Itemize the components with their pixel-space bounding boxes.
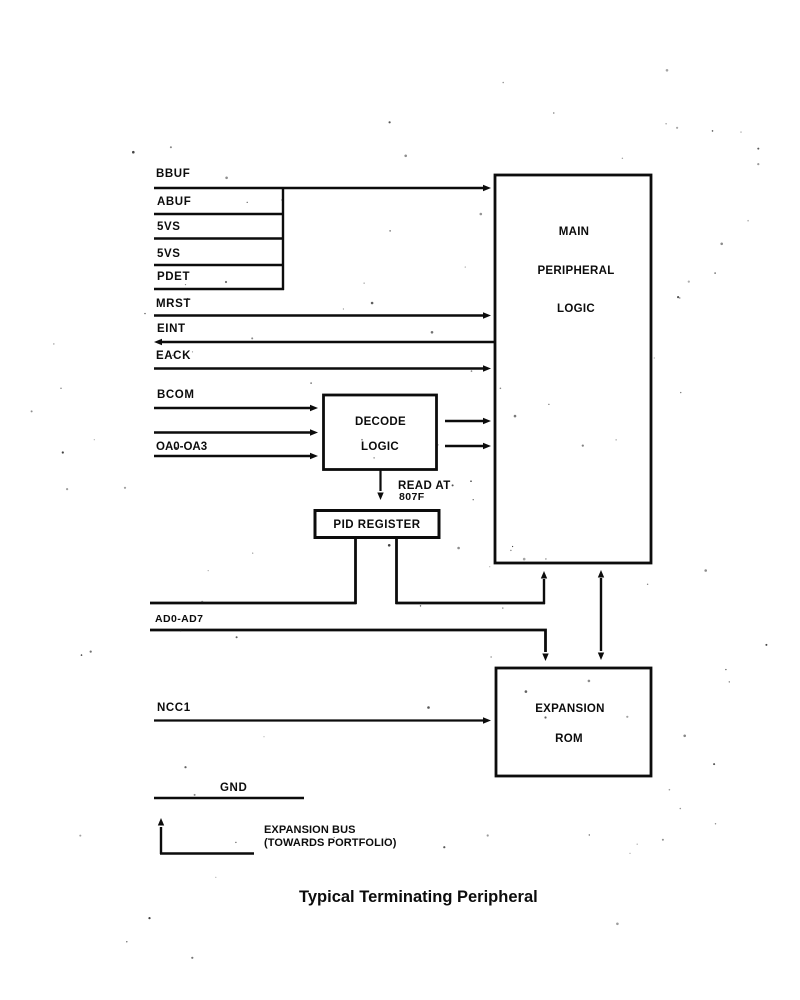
svg-text:BCOM: BCOM xyxy=(157,389,195,401)
svg-text:EXPANSION: EXPANSION xyxy=(535,703,605,715)
svg-text:OA0-OA3: OA0-OA3 xyxy=(156,441,207,453)
svg-text:DECODE: DECODE xyxy=(355,416,406,428)
svg-text:GND: GND xyxy=(220,782,247,794)
svg-text:(TOWARDS PORTFOLIO): (TOWARDS PORTFOLIO) xyxy=(264,837,397,849)
svg-text:AD0-AD7: AD0-AD7 xyxy=(155,613,203,625)
svg-text:MRST: MRST xyxy=(156,298,191,310)
svg-text:ABUF: ABUF xyxy=(157,196,191,208)
svg-text:PERIPHERAL: PERIPHERAL xyxy=(537,265,614,277)
svg-text:5VS: 5VS xyxy=(157,221,181,233)
svg-text:BBUF: BBUF xyxy=(156,168,190,180)
svg-text:EACK: EACK xyxy=(156,350,191,362)
svg-text:EINT: EINT xyxy=(157,323,186,335)
svg-text:ROM: ROM xyxy=(555,733,583,745)
svg-text:NCC1: NCC1 xyxy=(157,702,191,714)
svg-text:EXPANSION BUS: EXPANSION BUS xyxy=(264,824,356,836)
svg-text:807F: 807F xyxy=(399,491,425,503)
svg-text:LOGIC: LOGIC xyxy=(557,303,595,315)
svg-text:PDET: PDET xyxy=(157,271,190,283)
svg-text:PID REGISTER: PID REGISTER xyxy=(333,519,420,531)
svg-text:5VS: 5VS xyxy=(157,248,181,260)
svg-text:MAIN: MAIN xyxy=(559,226,590,238)
svg-text:LOGIC: LOGIC xyxy=(361,441,399,453)
svg-text:Typical Terminating Peripheral: Typical Terminating Peripheral xyxy=(299,888,538,906)
